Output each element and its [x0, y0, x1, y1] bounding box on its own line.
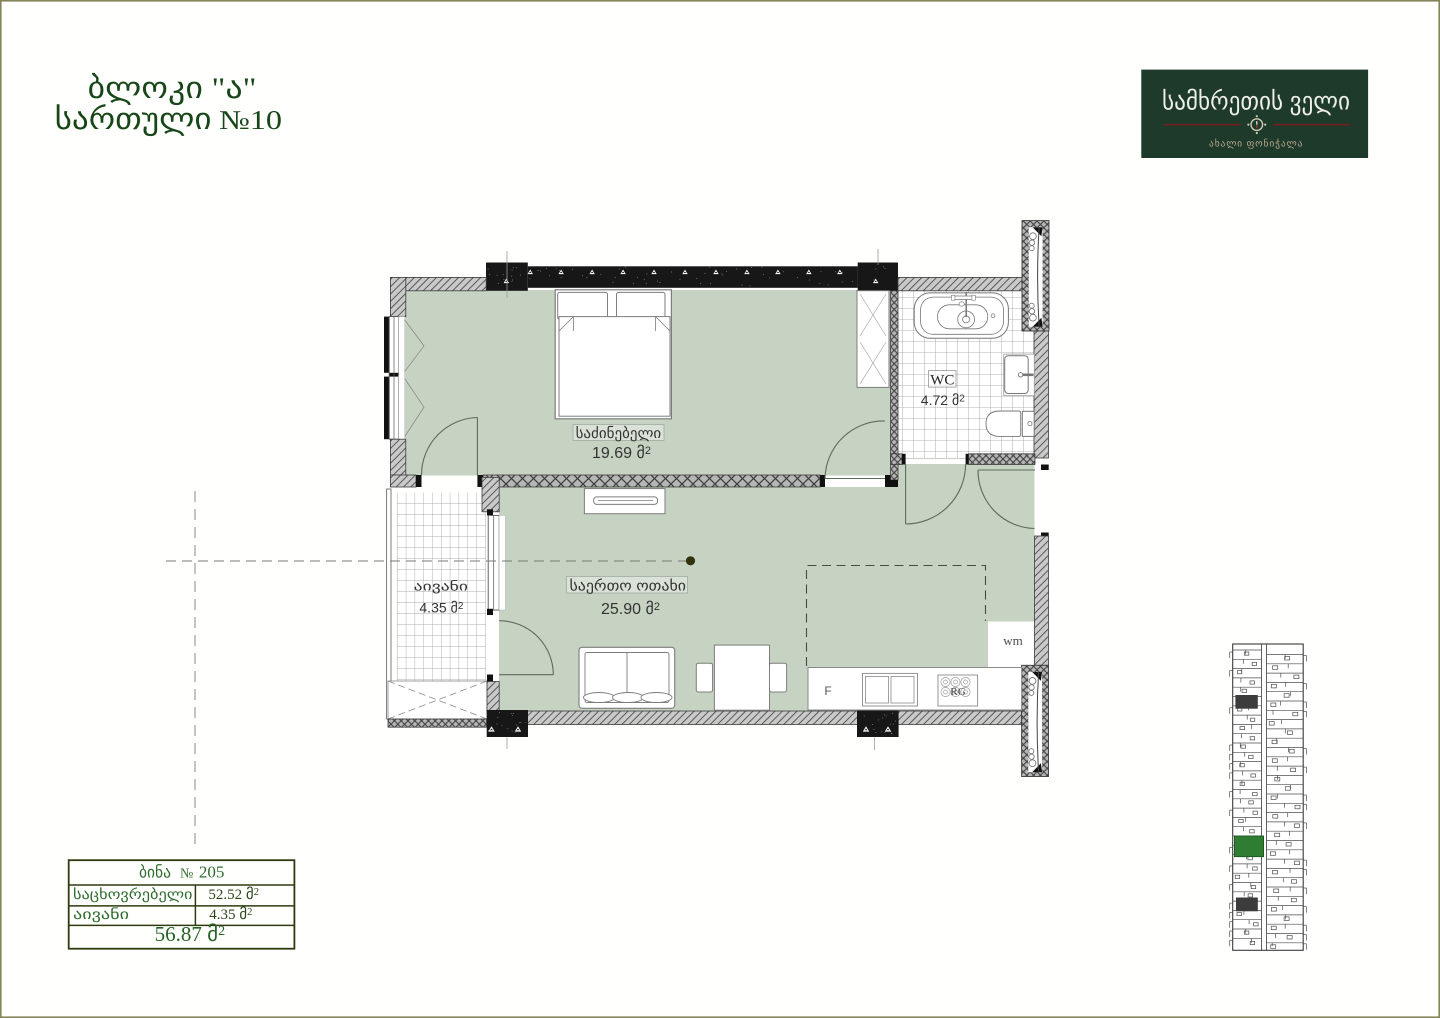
svg-text:საცხოვრებელი: საცხოვრებელი — [73, 887, 193, 903]
svg-text:4.35 მ2: 4.35 მ2 — [209, 906, 252, 923]
svg-text:4.72 მ2: 4.72 მ2 — [921, 392, 965, 408]
svg-text:№10: №10 — [219, 105, 282, 135]
svg-text:wm: wm — [1003, 633, 1023, 648]
svg-text:სამხრეთის ველი: სამხრეთის ველი — [1162, 88, 1350, 116]
svg-text:აივანი: აივანი — [414, 580, 469, 595]
svg-text:ახალი ფონიჭალა: ახალი ფონიჭალა — [1209, 138, 1305, 150]
svg-text:ბინა: ბინა — [139, 864, 171, 882]
svg-text:WC: WC — [930, 372, 954, 388]
svg-text:19.69 მ2: 19.69 მ2 — [592, 444, 651, 462]
svg-text:სართული: სართული — [55, 103, 212, 137]
svg-text:205: 205 — [199, 863, 225, 882]
svg-text:4.35 მ2: 4.35 მ2 — [419, 600, 463, 616]
svg-text:საძინებელი: საძინებელი — [576, 425, 662, 442]
svg-text:52.52 მ2: 52.52 მ2 — [208, 886, 259, 903]
svg-text:25.90 მ2: 25.90 მ2 — [601, 600, 660, 618]
svg-text:აივანი: აივანი — [73, 907, 129, 923]
svg-text:56.87 მ2: 56.87 მ2 — [155, 922, 225, 946]
svg-text:საერთო ოთახი: საერთო ოთახი — [570, 578, 687, 595]
svg-text:F: F — [824, 684, 831, 698]
svg-text:ბლოკი "ა": ბლოკი "ა" — [88, 72, 257, 106]
svg-text:№: № — [180, 867, 193, 882]
svg-text:RG: RG — [950, 686, 965, 698]
